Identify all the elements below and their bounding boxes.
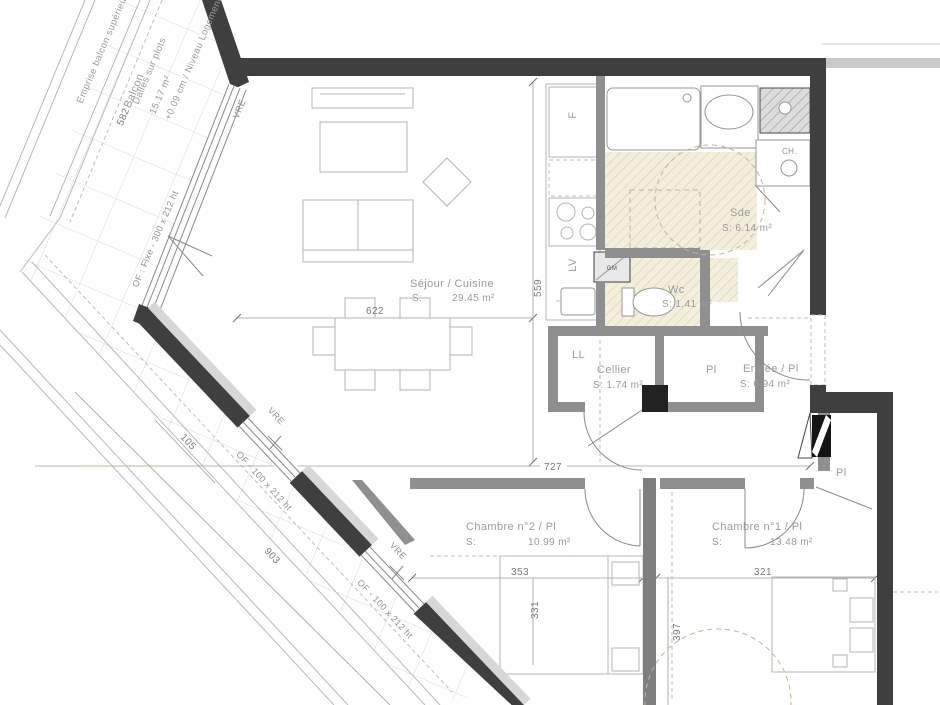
room-area-entree: S: 6.94 m² bbox=[740, 379, 790, 390]
washbasin bbox=[705, 95, 753, 129]
coffee-table bbox=[320, 122, 407, 172]
room-s-chambre1: S: bbox=[712, 537, 722, 548]
floor-plan-page: Emprise balcon supérieur 582 Balcon 15.1… bbox=[0, 0, 940, 705]
bedroom-divider-wall bbox=[643, 478, 656, 705]
sideboard bbox=[312, 88, 413, 108]
dim-622: 622 bbox=[366, 306, 384, 317]
fridge-label: F bbox=[567, 111, 579, 118]
room-s-sejour: S: bbox=[412, 293, 422, 304]
room-label-chambre2: Chambre n°2 / Pl bbox=[466, 521, 556, 533]
balcony-area bbox=[0, 0, 500, 705]
dim-559: 559 bbox=[533, 279, 544, 297]
dim-727: 727 bbox=[544, 462, 562, 473]
bed-1 bbox=[772, 577, 875, 672]
dishwasher-label: LV bbox=[567, 258, 579, 272]
floor-plan-drawing: Emprise balcon supérieur 582 Balcon 15.1… bbox=[0, 0, 940, 705]
room-label-wc: Wc bbox=[668, 284, 685, 296]
armchair bbox=[423, 158, 471, 206]
column bbox=[642, 385, 668, 412]
dim-331: 331 bbox=[530, 601, 541, 619]
fridge bbox=[549, 87, 597, 157]
room-area-sde: S: 6.14 m² bbox=[722, 223, 772, 234]
room-label-sejour: Séjour / Cuisine bbox=[410, 278, 494, 290]
duct-label: GM bbox=[607, 266, 617, 272]
exterior-walls bbox=[133, 0, 940, 705]
room-area-sejour: 29.45 m² bbox=[452, 293, 495, 304]
cooktop bbox=[549, 198, 597, 246]
water-heater-label: CH. bbox=[782, 147, 797, 156]
dim-903: 903 bbox=[262, 546, 282, 567]
room-area-chambre1: 13.48 m² bbox=[770, 537, 813, 548]
room-area-cellier: S: 1.74 m² bbox=[593, 380, 643, 391]
room-label-sde: Sde bbox=[730, 207, 751, 219]
window-vre-b: VRE bbox=[266, 405, 287, 426]
room-area-wc: S: 1.41 m² bbox=[662, 299, 712, 310]
dining-table bbox=[335, 318, 450, 370]
room-area-chambre2: 10.99 m² bbox=[528, 537, 571, 548]
room-label-entree: Entrée / Pl bbox=[743, 363, 799, 375]
dim-397: 397 bbox=[672, 623, 683, 641]
room-label-cellier: Cellier bbox=[597, 364, 631, 376]
closet-label-hall: Pl bbox=[706, 364, 717, 376]
room-label-chambre1: Chambre n°1 / Pl bbox=[712, 521, 802, 533]
closet-label-entry: Pl bbox=[836, 467, 847, 479]
kitchen-sink bbox=[561, 288, 595, 315]
toilet-tank bbox=[622, 288, 634, 316]
room-s-chambre2: S: bbox=[466, 537, 476, 548]
washer-label: LL bbox=[572, 349, 585, 361]
dim-353: 353 bbox=[511, 567, 529, 578]
dim-321: 321 bbox=[754, 567, 772, 578]
